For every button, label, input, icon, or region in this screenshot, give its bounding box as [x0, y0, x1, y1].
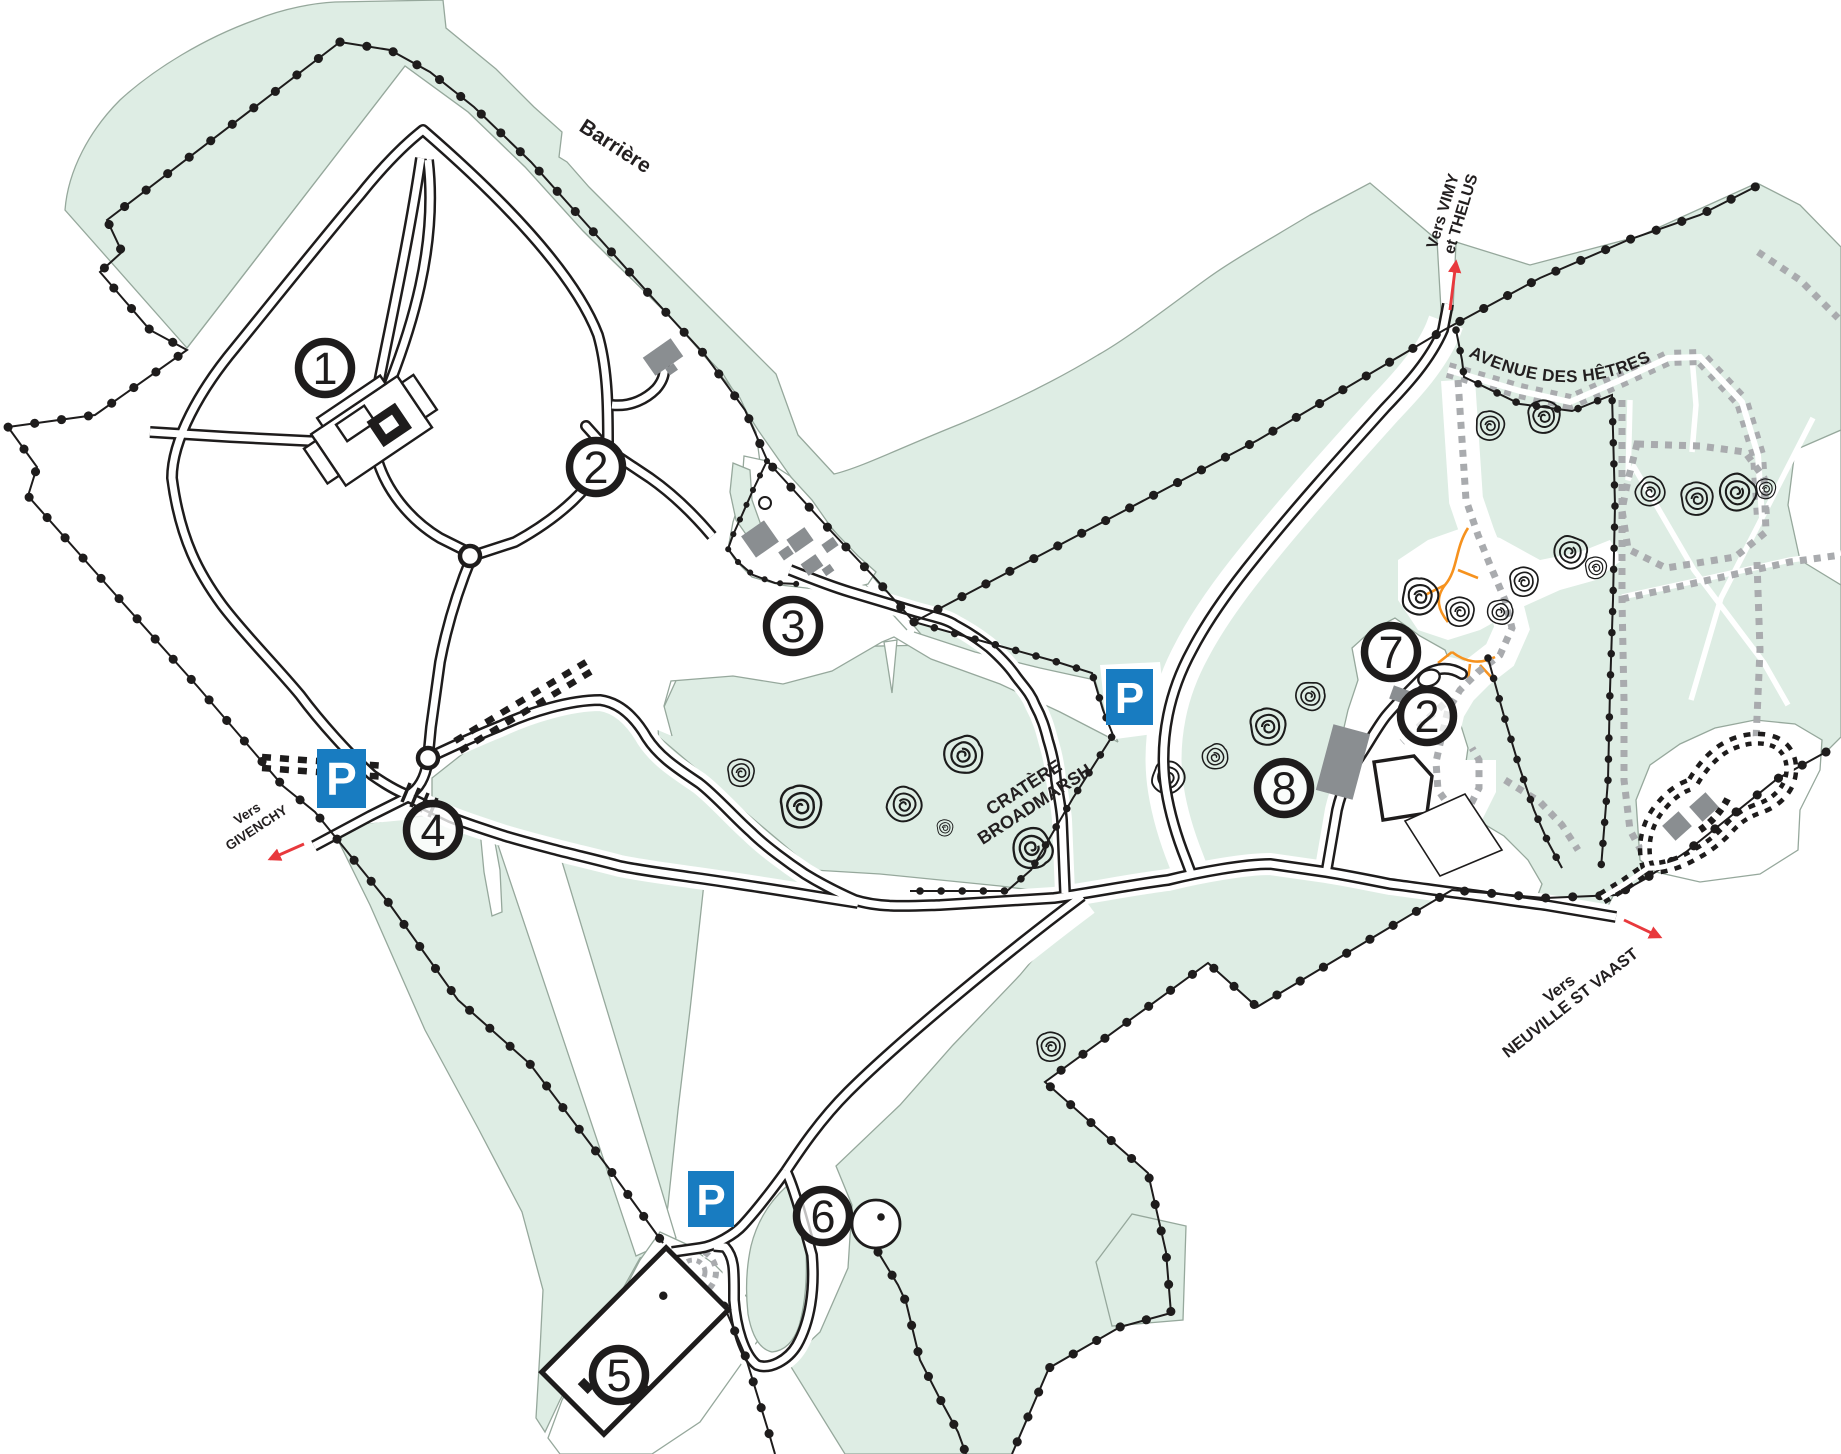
- svg-text:7: 7: [1378, 627, 1403, 678]
- svg-text:8: 8: [1271, 763, 1296, 814]
- svg-text:P: P: [696, 1176, 725, 1225]
- svg-text:2: 2: [583, 442, 608, 493]
- svg-text:6: 6: [810, 1191, 835, 1242]
- svg-text:5: 5: [606, 1350, 631, 1401]
- svg-text:2: 2: [1414, 691, 1439, 742]
- svg-text:P: P: [1115, 674, 1144, 723]
- svg-text:4: 4: [420, 805, 445, 856]
- svg-text:P: P: [326, 753, 357, 805]
- svg-text:3: 3: [780, 601, 805, 652]
- svg-text:1: 1: [312, 343, 337, 394]
